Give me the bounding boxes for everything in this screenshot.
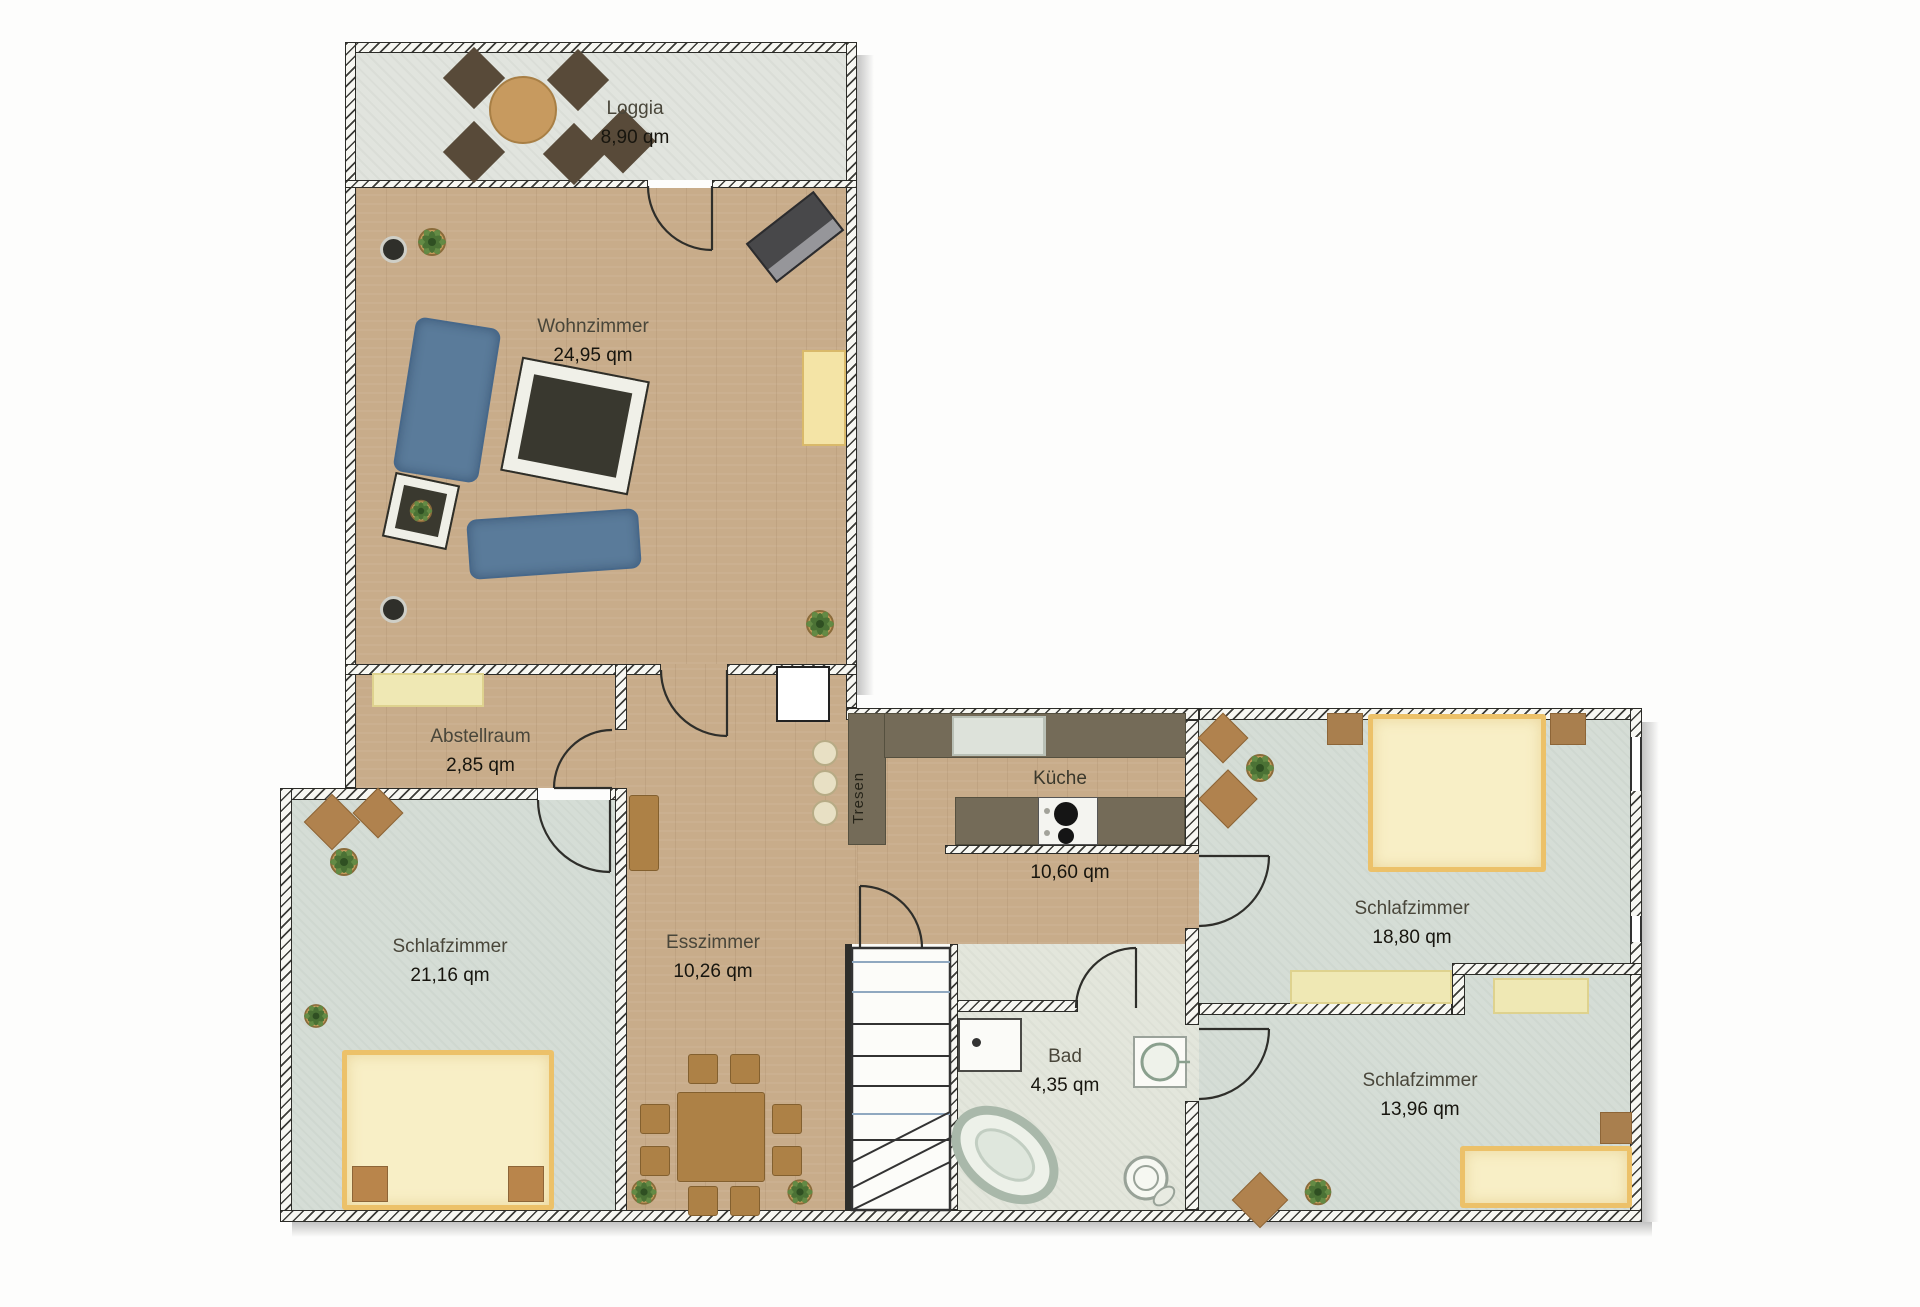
label-tresen: Tresen: [850, 752, 884, 844]
room-name: Schlafzimmer: [1345, 1070, 1495, 1092]
room-name: Küche: [995, 768, 1125, 790]
room-label-schlafzimmer-unten-rechts: Schlafzimmer 13,96 qm: [1345, 1070, 1495, 1121]
dining-chair: [772, 1146, 802, 1176]
room-name: Esszimmer: [648, 932, 778, 954]
room-area: 10,26 qm: [648, 961, 778, 983]
dresser: [1493, 978, 1589, 1014]
room-label-loggia: Loggia 8,90 qm: [570, 98, 700, 149]
double-bed: [1368, 714, 1546, 872]
wall-bedroom-left-left: [280, 788, 292, 1222]
dining-chair: [730, 1186, 760, 1216]
room-label-esszimmer: Esszimmer 10,26 qm: [648, 932, 778, 983]
window-right-2: [1630, 916, 1642, 942]
wall-bottom: [280, 1210, 1642, 1222]
bed: [1460, 1146, 1632, 1208]
room-label-wohnzimmer: Wohnzimmer 24,95 qm: [518, 316, 668, 367]
sideboard: [802, 350, 846, 446]
room-name: Loggia: [570, 98, 700, 120]
esszimmer-sideboard: [629, 795, 659, 871]
abstellraum-sideboard: [372, 673, 484, 707]
room-area: 13,96 qm: [1345, 1099, 1495, 1121]
wall-left-upper: [345, 42, 356, 788]
bar-stool: [812, 800, 838, 826]
room-name: Abstellraum: [408, 726, 553, 748]
wall-bedroom-left-top-a: [280, 788, 538, 800]
wall-loggia-divider-a: [345, 180, 648, 188]
room-label-bad: Bad 4,35 qm: [1000, 1046, 1130, 1097]
wall-kueche-counterband: [945, 845, 1199, 854]
washing-machine-knob: [972, 1038, 981, 1047]
room-name: Schlafzimmer: [1337, 898, 1487, 920]
burner-small: [1058, 828, 1074, 844]
room-area: 4,35 qm: [1000, 1075, 1130, 1097]
dining-chair: [640, 1104, 670, 1134]
wall-kueche-right-b: [1185, 928, 1199, 1025]
burner-mark: [1044, 830, 1050, 836]
wall-esszimmer-left: [615, 788, 627, 1216]
nightstand: [1327, 713, 1363, 745]
room-name: Bad: [1000, 1046, 1130, 1068]
nightstand: [352, 1166, 388, 1202]
room-label-schlafzimmer-links: Schlafzimmer 21,16 qm: [375, 936, 525, 987]
bar-stool: [812, 740, 838, 766]
dining-chair: [688, 1186, 718, 1216]
scan-shadow-bottom: [292, 1222, 1652, 1237]
chimney: [776, 666, 830, 722]
room-area: 10,60 qm: [1005, 862, 1135, 884]
loggia-round-table: [489, 76, 557, 144]
room-area: 24,95 qm: [518, 345, 668, 367]
burner-mark: [1044, 808, 1050, 814]
room-name: Wohnzimmer: [518, 316, 668, 338]
floor-plan-canvas: Loggia 8,90 qm Wohnzimmer 24,95 qm Abste…: [0, 0, 1920, 1307]
window-right-1: [1630, 737, 1642, 791]
room-area: 21,16 qm: [375, 965, 525, 987]
wall-loggia-divider-b: [712, 180, 857, 188]
nightstand: [508, 1166, 544, 1202]
dining-chair: [772, 1104, 802, 1134]
wall-abstellraum-right: [615, 664, 627, 730]
nightstand: [1550, 713, 1586, 745]
wall-bad-top: [956, 1000, 1078, 1012]
dining-chair: [730, 1054, 760, 1084]
scan-shadow-right-bedrooms: [1642, 722, 1659, 1222]
room-area: 8,90 qm: [570, 127, 700, 149]
wall-loggia-top: [345, 42, 857, 53]
sofa-short: [466, 508, 642, 580]
dining-chair: [640, 1146, 670, 1176]
dining-table: [677, 1092, 765, 1182]
room-label-schlafzimmer-oben-rechts: Schlafzimmer 18,80 qm: [1337, 898, 1487, 949]
nightstand: [1600, 1112, 1632, 1144]
room-area: 2,85 qm: [408, 755, 553, 777]
dresser: [1290, 970, 1452, 1004]
rug: [502, 359, 647, 493]
wall-treppe-left: [845, 944, 852, 1210]
floor-lamp: [380, 596, 407, 623]
room-name: Schlafzimmer: [375, 936, 525, 958]
wall-treppe-right: [950, 944, 958, 1210]
burner-large: [1054, 802, 1078, 826]
dining-chair: [688, 1054, 718, 1084]
kitchen-sink: [952, 716, 1046, 756]
floor-lamp: [380, 236, 407, 263]
room-area: 18,80 qm: [1337, 927, 1487, 949]
washbasin-cabinet: [1133, 1036, 1187, 1088]
room-label-kueche-name: Küche: [995, 768, 1125, 797]
room-label-abstellraum: Abstellraum 2,85 qm: [408, 726, 553, 777]
scan-shadow-right-upper: [857, 55, 874, 695]
wall-kueche-right-a: [1185, 720, 1199, 852]
wall-kueche-right-c: [1185, 1101, 1199, 1210]
wall-bedrooms-divider-left: [1199, 1003, 1452, 1015]
side-table: [384, 474, 458, 548]
bar-stool: [812, 770, 838, 796]
wall-right-upper: [846, 42, 857, 708]
treppenhaus-floor: [850, 944, 952, 1210]
room-label-kueche-area: 10,60 qm: [1005, 862, 1135, 884]
wall-bedrooms-divider-right: [1452, 963, 1642, 975]
